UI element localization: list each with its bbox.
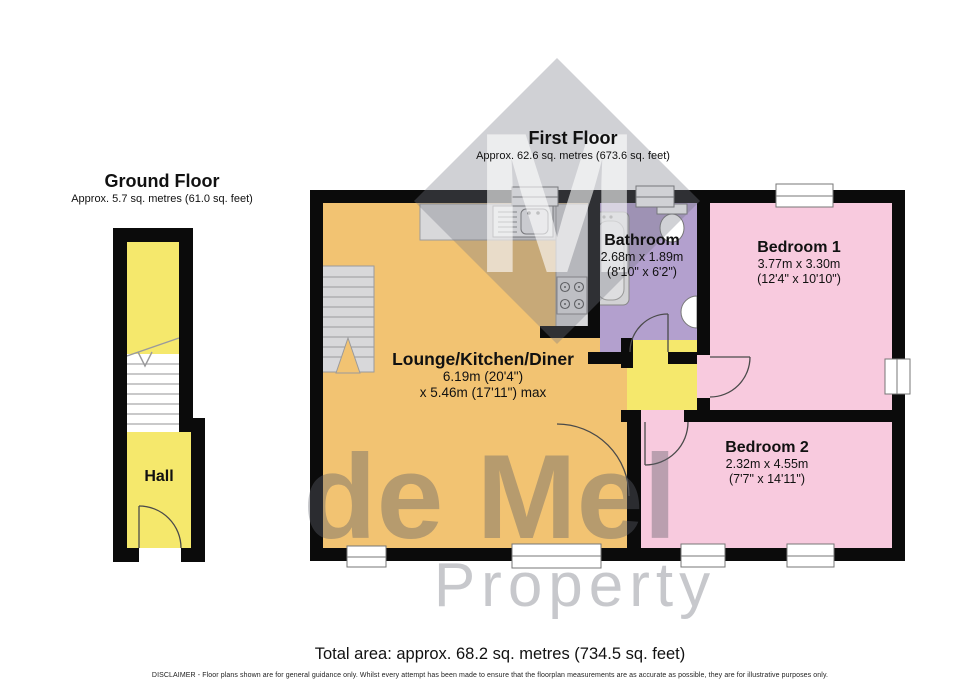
first-floor-subtitle: Approx. 62.6 sq. metres (673.6 sq. feet) (476, 149, 670, 163)
room-dimensions: (12'4" x 10'10") (757, 272, 841, 287)
room-dimensions: (8'10" x 6'2") (601, 265, 684, 280)
room-dimensions: 2.68m x 1.89m (601, 250, 684, 265)
disclaimer-text: DISCLAIMER - Floor plans shown are for g… (152, 672, 828, 679)
bathroom-label: Bathroom 2.68m x 1.89m (8'10" x 6'2") (601, 231, 684, 280)
room-dimensions: 2.32m x 4.55m (725, 457, 809, 472)
labels-layer: Ground Floor Approx. 5.7 sq. metres (61.… (0, 0, 980, 690)
ground-floor-header: Ground Floor Approx. 5.7 sq. metres (61.… (71, 171, 253, 206)
room-dimensions: 3.77m x 3.30m (757, 257, 841, 272)
lounge-label: Lounge/Kitchen/Diner 6.19m (20'4") x 5.4… (392, 349, 574, 401)
room-name: Bedroom 2 (725, 438, 809, 457)
total-area-text: Total area: approx. 68.2 sq. metres (734… (315, 645, 686, 664)
first-floor-title: First Floor (476, 128, 670, 149)
room-name: Bedroom 1 (757, 238, 841, 257)
room-dimensions: x 5.46m (17'11") max (392, 385, 574, 401)
room-dimensions: 6.19m (20'4") (392, 369, 574, 385)
room-name: Hall (144, 467, 173, 486)
hall-label: Hall (144, 467, 173, 486)
ground-floor-subtitle: Approx. 5.7 sq. metres (61.0 sq. feet) (71, 192, 253, 206)
room-name: Bathroom (601, 231, 684, 250)
ground-floor-title: Ground Floor (71, 171, 253, 192)
room-dimensions: (7'7" x 14'11") (725, 472, 809, 487)
bedroom1-label: Bedroom 1 3.77m x 3.30m (12'4" x 10'10") (757, 238, 841, 287)
room-name: Lounge/Kitchen/Diner (392, 349, 574, 369)
floorplan-page: { "ground_floor": { "title": "Ground Flo… (0, 0, 980, 690)
first-floor-header: First Floor Approx. 62.6 sq. metres (673… (476, 128, 670, 163)
bedroom2-label: Bedroom 2 2.32m x 4.55m (7'7" x 14'11") (725, 438, 809, 487)
